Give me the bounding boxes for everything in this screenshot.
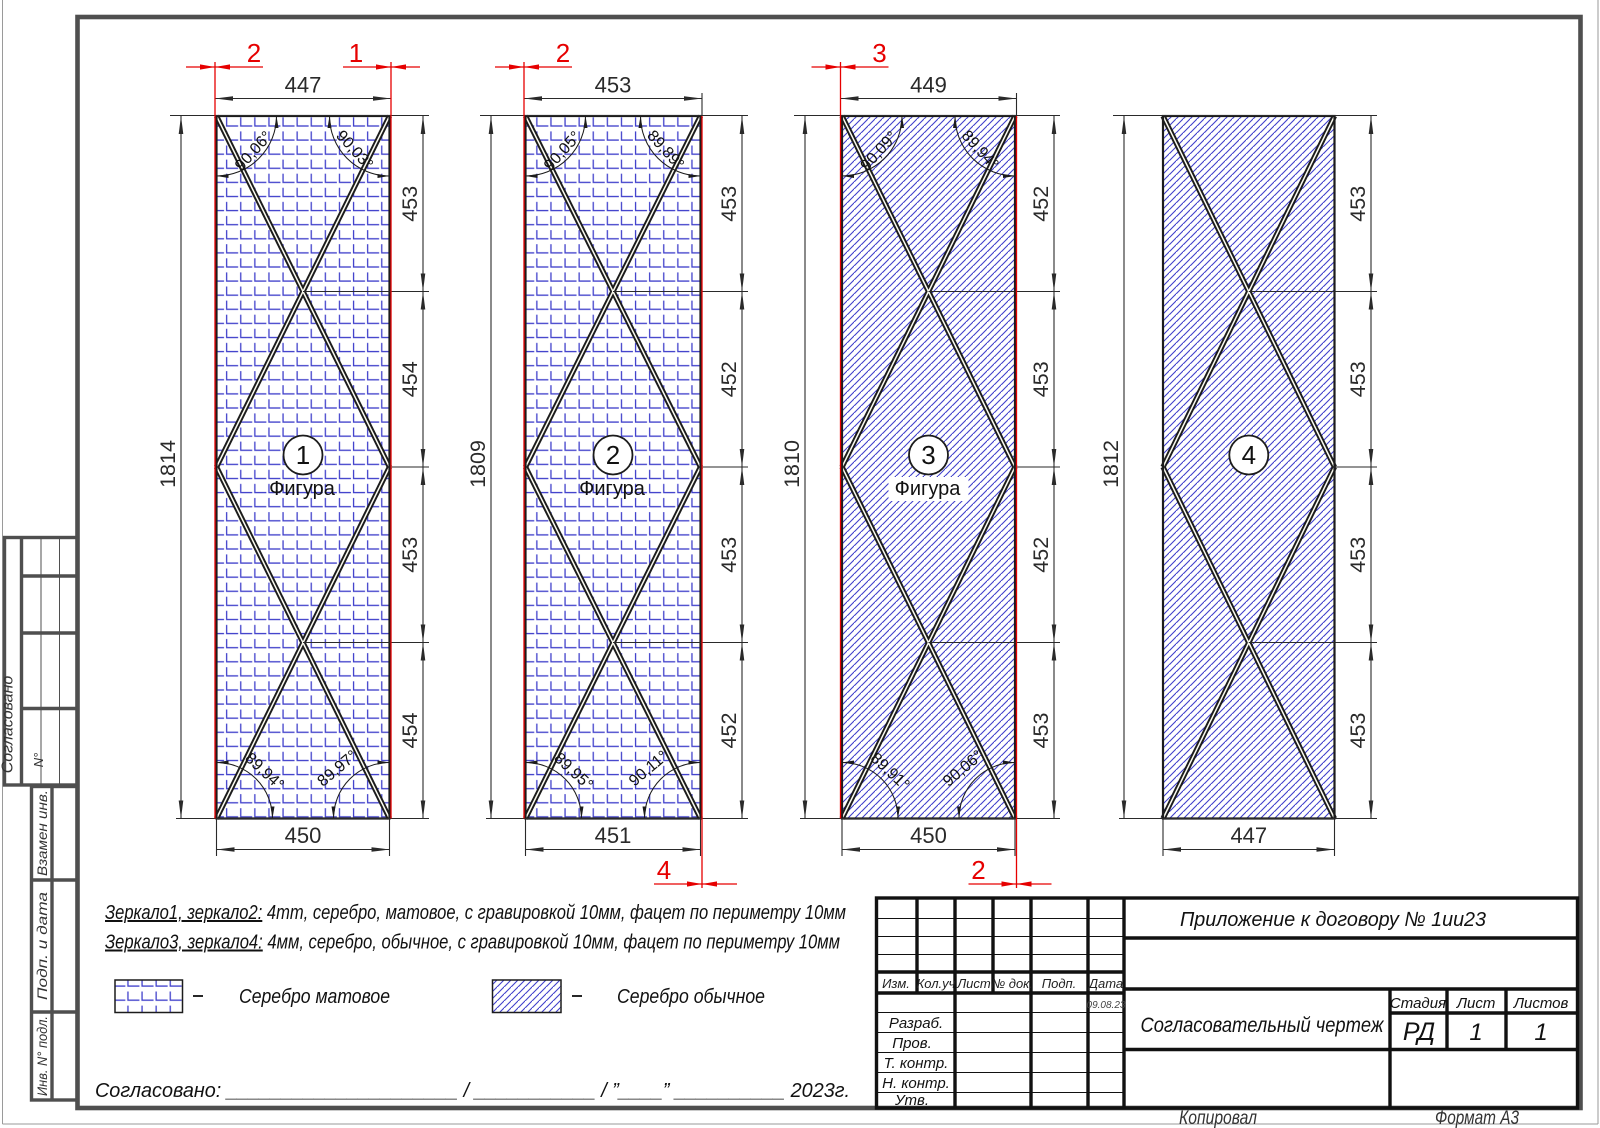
svg-text:Листов: Листов (1513, 995, 1569, 1012)
svg-text:1814: 1814 (156, 440, 180, 488)
svg-text:452: 452 (717, 361, 741, 397)
svg-text:Зеркало3, зеркало4: 4мм, сереб: Зеркало3, зеркало4: 4мм, серебро, обычно… (105, 932, 840, 954)
svg-text:2: 2 (971, 855, 985, 885)
svg-text:3: 3 (872, 38, 886, 68)
svg-text:453: 453 (1346, 537, 1370, 573)
svg-text:2: 2 (606, 440, 620, 470)
svg-text:Подп. и дата: Подп. и дата (34, 892, 50, 1000)
svg-text:453: 453 (1346, 713, 1370, 749)
svg-text:450: 450 (285, 823, 322, 848)
svg-text:Фигура: Фигура (579, 478, 646, 500)
svg-text:Фигура: Фигура (895, 478, 962, 500)
svg-text:453: 453 (595, 73, 632, 98)
svg-text:452: 452 (1029, 186, 1053, 222)
svg-text:Согласовано: Согласовано (0, 676, 17, 774)
svg-text:447: 447 (285, 73, 322, 98)
svg-text:Н. контр.: Н. контр. (882, 1075, 950, 1092)
svg-text:3: 3 (921, 440, 935, 470)
svg-text:Серебро матовое: Серебро матовое (239, 986, 390, 1008)
svg-text:Пров.: Пров. (892, 1035, 932, 1052)
svg-text:2: 2 (556, 38, 570, 68)
svg-text:Фигура: Фигура (269, 478, 336, 500)
svg-text:Изм.: Изм. (882, 976, 910, 991)
svg-text:1: 1 (349, 38, 363, 68)
svg-text:Лист: Лист (956, 976, 991, 991)
svg-text:РД: РД (1403, 1018, 1435, 1046)
svg-text:09.08.23: 09.08.23 (1087, 1000, 1126, 1011)
svg-text:2: 2 (247, 38, 261, 68)
svg-text:451: 451 (595, 823, 632, 848)
svg-text:452: 452 (1029, 537, 1053, 573)
svg-text:Инв. N° подл.: Инв. N° подл. (34, 1016, 50, 1096)
svg-text:453: 453 (1029, 713, 1053, 749)
svg-text:Утв.: Утв. (894, 1092, 929, 1109)
svg-text:Разраб.: Разраб. (889, 1015, 943, 1032)
svg-text:1: 1 (1534, 1019, 1547, 1046)
svg-text:1809: 1809 (466, 440, 490, 488)
svg-text:453: 453 (717, 537, 741, 573)
svg-text:1: 1 (1469, 1019, 1482, 1046)
svg-text:Стадия: Стадия (1390, 995, 1446, 1012)
svg-text:4: 4 (657, 855, 671, 885)
svg-text:453: 453 (1346, 361, 1370, 397)
svg-text:452: 452 (717, 713, 741, 749)
svg-text:Т. контр.: Т. контр. (884, 1055, 949, 1072)
svg-text:1812: 1812 (1099, 440, 1123, 488)
svg-text:454: 454 (398, 361, 422, 397)
svg-text:1: 1 (296, 440, 310, 470)
svg-text:453: 453 (717, 186, 741, 222)
svg-text:Приложение к договору № 1и: Приложение к договору № 1ии23 (1180, 908, 1487, 931)
svg-text:453: 453 (398, 186, 422, 222)
svg-text:№ док.: № док. (991, 976, 1033, 991)
svg-text:Подп.: Подп. (1042, 976, 1077, 991)
svg-text:Зеркало1, зеркало2: 4mm, сереб: Зеркало1, зеркало2: 4mm, серебро, матово… (105, 902, 846, 924)
svg-text:447: 447 (1230, 823, 1267, 848)
svg-text:Кол.уч: Кол.уч (917, 976, 956, 991)
svg-text:Серебро обычное: Серебро обычное (617, 986, 765, 1008)
svg-text:4: 4 (1242, 440, 1256, 470)
svg-text:449: 449 (910, 73, 947, 98)
svg-text:453: 453 (1346, 186, 1370, 222)
svg-text:Копировал: Копировал (1179, 1108, 1257, 1128)
svg-text:N°: N° (31, 753, 46, 768)
svg-text:1810: 1810 (780, 440, 804, 488)
svg-text:454: 454 (398, 713, 422, 749)
svg-text:Согласовано: _________________: Согласовано: _____________________ / ___… (95, 1080, 850, 1102)
svg-text:453: 453 (1029, 361, 1053, 397)
svg-text:Взамен инв.: Взамен инв. (34, 790, 50, 876)
svg-text:Формат А3: Формат А3 (1435, 1108, 1519, 1128)
svg-text:450: 450 (910, 823, 947, 848)
svg-text:Дата: Дата (1087, 976, 1123, 991)
svg-text:453: 453 (398, 537, 422, 573)
svg-text:Лист: Лист (1456, 995, 1496, 1012)
svg-text:Согласовательный чертеж: Согласовательный чертеж (1141, 1014, 1385, 1037)
